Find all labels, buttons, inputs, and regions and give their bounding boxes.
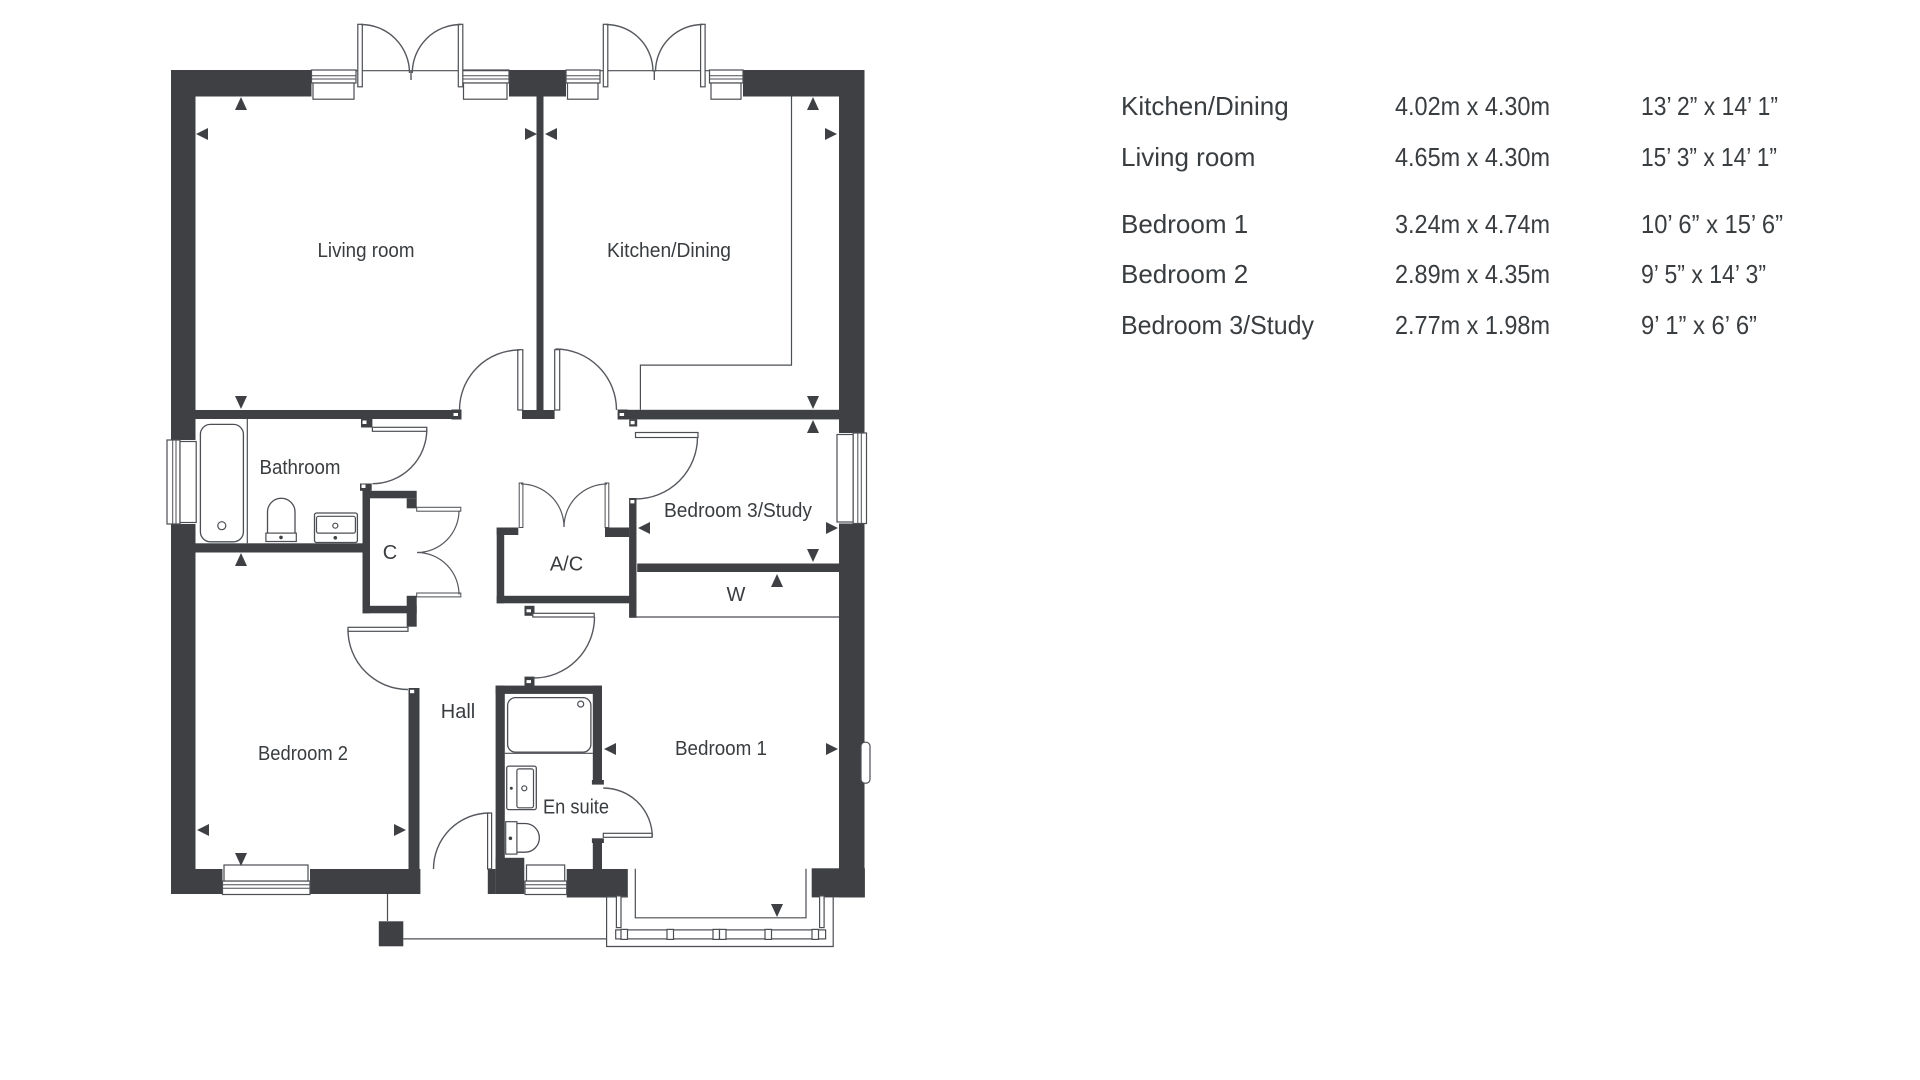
svg-text:13’ 2” x 14’ 1”: 13’ 2” x 14’ 1” xyxy=(1641,91,1778,121)
svg-text:Bedroom 1: Bedroom 1 xyxy=(675,738,767,760)
svg-text:Bedroom 3/Study: Bedroom 3/Study xyxy=(1121,310,1314,340)
svg-text:En suite: En suite xyxy=(543,797,609,819)
svg-text:3.24m x 4.74m: 3.24m x 4.74m xyxy=(1395,209,1550,239)
svg-text:A/C: A/C xyxy=(550,554,583,576)
svg-text:Bedroom 2: Bedroom 2 xyxy=(1121,259,1248,289)
svg-text:4.65m x 4.30m: 4.65m x 4.30m xyxy=(1395,142,1550,172)
svg-text:Living room: Living room xyxy=(1121,142,1255,172)
svg-text:4.02m x 4.30m: 4.02m x 4.30m xyxy=(1395,91,1550,121)
svg-text:Hall: Hall xyxy=(441,701,475,723)
svg-text:2.77m x 1.98m: 2.77m x 1.98m xyxy=(1395,310,1550,340)
svg-text:15’ 3” x 14’ 1”: 15’ 3” x 14’ 1” xyxy=(1641,142,1777,172)
svg-text:Bedroom 1: Bedroom 1 xyxy=(1121,209,1248,239)
svg-text:Bathroom: Bathroom xyxy=(260,457,341,479)
svg-text:Bedroom 3/Study: Bedroom 3/Study xyxy=(664,500,812,522)
svg-text:C: C xyxy=(383,542,397,564)
svg-text:9’ 5” x 14’ 3”: 9’ 5” x 14’ 3” xyxy=(1641,259,1766,289)
svg-text:10’ 6” x 15’ 6”: 10’ 6” x 15’ 6” xyxy=(1641,209,1783,239)
svg-text:Kitchen/Dining: Kitchen/Dining xyxy=(1121,91,1289,121)
svg-text:9’ 1” x 6’ 6”: 9’ 1” x 6’ 6” xyxy=(1641,310,1757,340)
svg-text:Kitchen/Dining: Kitchen/Dining xyxy=(607,240,731,262)
svg-text:2.89m x 4.35m: 2.89m x 4.35m xyxy=(1395,259,1550,289)
svg-text:Living room: Living room xyxy=(318,240,415,262)
svg-text:Bedroom 2: Bedroom 2 xyxy=(258,743,348,765)
svg-text:W: W xyxy=(727,584,746,606)
